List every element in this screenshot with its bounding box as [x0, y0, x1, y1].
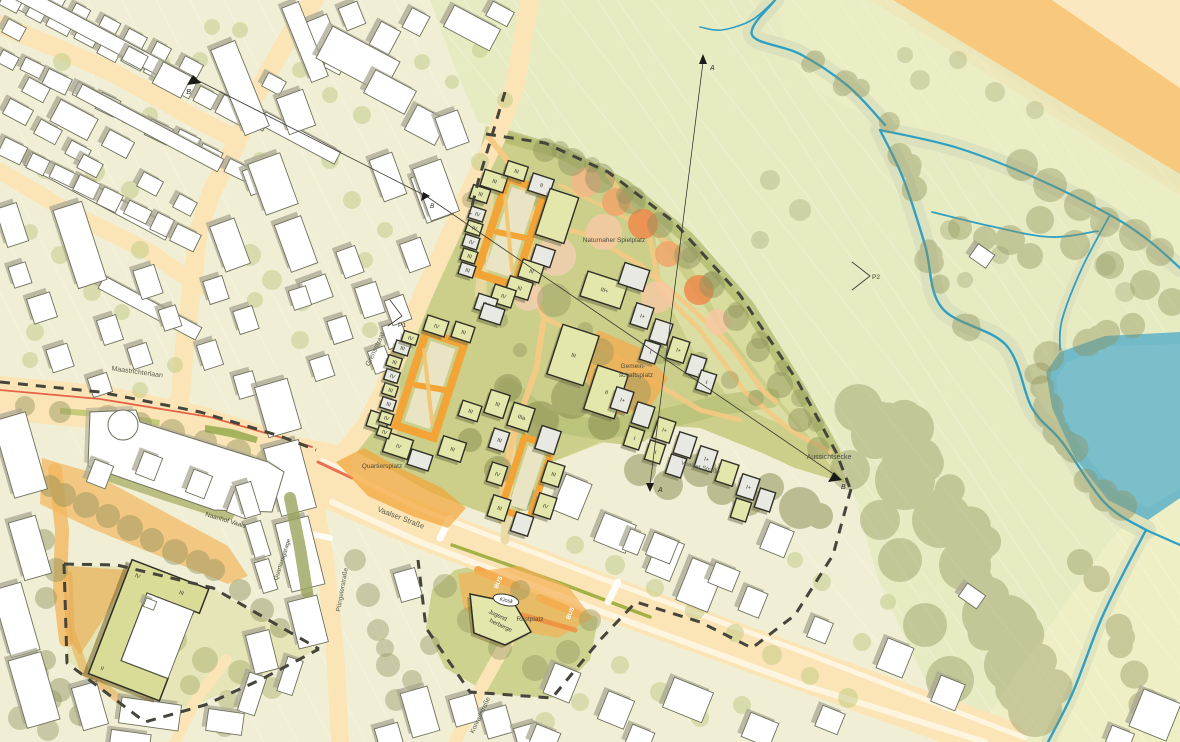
svg-text:B: B: [430, 203, 435, 210]
svg-text:Quartiersplatz: Quartiersplatz: [362, 463, 402, 470]
svg-text:P1: P1: [398, 322, 406, 329]
svg-text:P2: P2: [872, 274, 880, 281]
svg-text:schaftsplatz: schaftsplatz: [619, 372, 653, 379]
svg-text:Aussichtsecke: Aussichtsecke: [807, 454, 852, 461]
svg-text:B: B: [186, 89, 191, 96]
svg-text:A: A: [709, 65, 715, 72]
svg-text:Naturnaher Spielplatz: Naturnaher Spielplatz: [583, 237, 646, 244]
svg-text:Rastplatz: Rastplatz: [516, 616, 543, 623]
svg-text:A: A: [657, 487, 663, 494]
svg-text:B: B: [841, 484, 846, 491]
svg-text:Gemein-: Gemein-: [621, 363, 646, 370]
